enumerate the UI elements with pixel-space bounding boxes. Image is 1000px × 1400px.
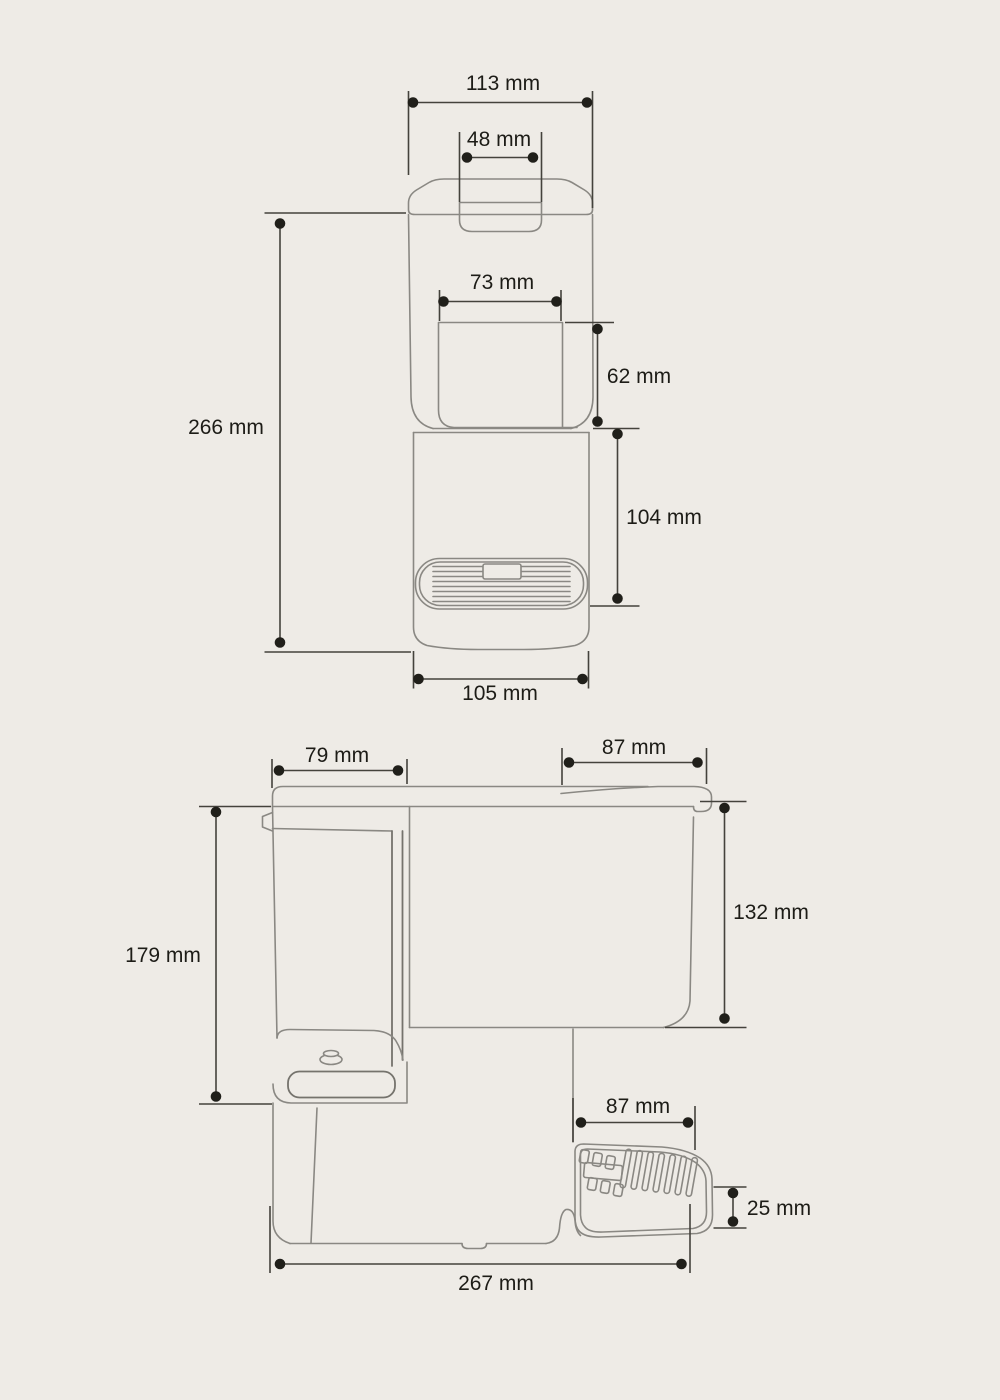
dim-dot xyxy=(612,593,623,604)
side-head-tank-seam xyxy=(392,831,403,1066)
side-base-foot-notch xyxy=(462,1244,487,1249)
dim-label-head-depth: 79 mm xyxy=(305,744,369,767)
grill-slot xyxy=(653,1153,665,1192)
dim-dot xyxy=(275,1259,286,1270)
extension-line xyxy=(440,290,562,321)
front-lid-outline xyxy=(409,179,593,215)
dim-dot xyxy=(592,324,603,335)
side-base-front-seam xyxy=(311,1108,317,1243)
dim-side-top-lid-depth: 87 mm xyxy=(562,736,707,785)
side-base-left-edge xyxy=(273,1103,290,1244)
grill-slot xyxy=(642,1152,654,1191)
dim-side-drip-tray-depth: 87 mm xyxy=(573,1095,695,1150)
dim-dot xyxy=(438,296,449,307)
dim-label-lower-section-height: 104 mm xyxy=(626,506,702,529)
dim-label-top-width: 113 mm xyxy=(466,72,540,95)
grill-mark xyxy=(587,1177,597,1190)
dim-dot xyxy=(528,152,539,163)
front-capsule-window xyxy=(439,323,578,429)
dim-dot xyxy=(211,807,222,818)
dim-dot xyxy=(576,1117,587,1128)
side-tank-lid-flap xyxy=(561,787,712,812)
dim-front-window-height: 62 mm xyxy=(565,323,671,429)
dim-dot xyxy=(462,152,473,163)
dim-dot xyxy=(577,674,588,685)
dimension-drawing-page: 113 mm 48 mm 73 mm 62 mm xyxy=(0,0,1000,1400)
dim-dot xyxy=(413,674,424,685)
dim-dot xyxy=(676,1259,687,1270)
side-nozzle-top xyxy=(324,1051,339,1057)
dim-dot xyxy=(582,97,593,108)
grill-slot xyxy=(675,1156,687,1195)
grill-plate xyxy=(583,1162,622,1180)
dim-dot xyxy=(692,757,703,768)
extension-line xyxy=(199,807,272,1105)
dim-dot xyxy=(728,1216,739,1227)
side-front-tab xyxy=(263,813,273,832)
grill-mark xyxy=(605,1155,616,1169)
dim-side-total-depth: 267 mm xyxy=(270,1204,690,1295)
grill-slot xyxy=(620,1149,632,1188)
dim-label-total-depth: 267 mm xyxy=(458,1272,534,1295)
dim-label-lid-handle-width: 48 mm xyxy=(467,128,531,151)
dim-dot xyxy=(683,1117,694,1128)
dim-front-lid-handle-width: 48 mm xyxy=(460,128,542,202)
dim-side-head-depth: 79 mm xyxy=(272,744,407,788)
dim-side-body-height: 179 mm xyxy=(125,807,272,1105)
dim-label-base-width: 105 mm xyxy=(462,682,538,705)
dim-label-window-height: 62 mm xyxy=(607,365,671,388)
dim-front-total-height: 266 mm xyxy=(188,213,411,652)
extension-line xyxy=(270,1204,690,1273)
front-lid-handle xyxy=(460,203,542,232)
side-head-plate xyxy=(288,1072,395,1098)
front-drip-tray-plate xyxy=(483,564,521,579)
dim-side-drip-tray-height: 25 mm xyxy=(714,1187,812,1228)
side-head-top-seam xyxy=(273,829,393,832)
dim-dot xyxy=(275,637,286,648)
dim-dot xyxy=(393,765,404,776)
dim-side-tank-height: 132 mm xyxy=(665,802,809,1028)
grill-slot xyxy=(631,1150,643,1189)
technical-drawing: 113 mm 48 mm 73 mm 62 mm xyxy=(0,0,1000,1400)
front-machine-drawing xyxy=(409,179,594,650)
dim-label-window-width: 73 mm xyxy=(470,271,534,294)
dim-label-top-lid-depth: 87 mm xyxy=(602,736,666,759)
dim-front-window-width: 73 mm xyxy=(438,271,562,321)
dim-front-base-width: 105 mm xyxy=(413,651,588,705)
dim-dot xyxy=(612,429,623,440)
dim-dot xyxy=(551,296,562,307)
front-body-right-edge xyxy=(571,215,593,429)
dim-dot xyxy=(592,416,603,427)
dim-label-drip-tray-height: 25 mm xyxy=(747,1197,811,1220)
side-machine-drawing xyxy=(263,787,713,1249)
dim-dot xyxy=(211,1091,222,1102)
side-front-edge xyxy=(273,807,278,1039)
dim-label-body-height: 179 mm xyxy=(125,944,201,967)
grill-mark xyxy=(600,1180,610,1193)
dim-label-tank-height: 132 mm xyxy=(733,901,809,924)
dim-label-drip-tray-depth: 87 mm xyxy=(606,1095,670,1118)
front-view: 113 mm 48 mm 73 mm 62 mm xyxy=(188,72,702,705)
side-view: 79 mm 87 mm 179 mm 132 mm xyxy=(125,736,811,1295)
dim-dot xyxy=(274,765,285,776)
front-base-outline xyxy=(414,433,590,650)
dim-dot xyxy=(275,218,286,229)
dim-front-lower-section-height: 104 mm xyxy=(590,429,702,606)
front-body-left-edge xyxy=(409,215,434,429)
dim-dot xyxy=(719,803,730,814)
dim-label-total-height: 266 mm xyxy=(188,416,264,439)
side-lid-outline xyxy=(273,787,649,807)
dim-dot xyxy=(564,757,575,768)
dim-dot xyxy=(408,97,419,108)
dim-dot xyxy=(728,1188,739,1199)
extension-line xyxy=(265,213,412,652)
side-body-right-edge xyxy=(664,817,694,1028)
side-head-block xyxy=(277,1030,403,1061)
grill-mark xyxy=(613,1183,623,1196)
dim-dot xyxy=(719,1013,730,1024)
grill-slot xyxy=(664,1154,676,1193)
